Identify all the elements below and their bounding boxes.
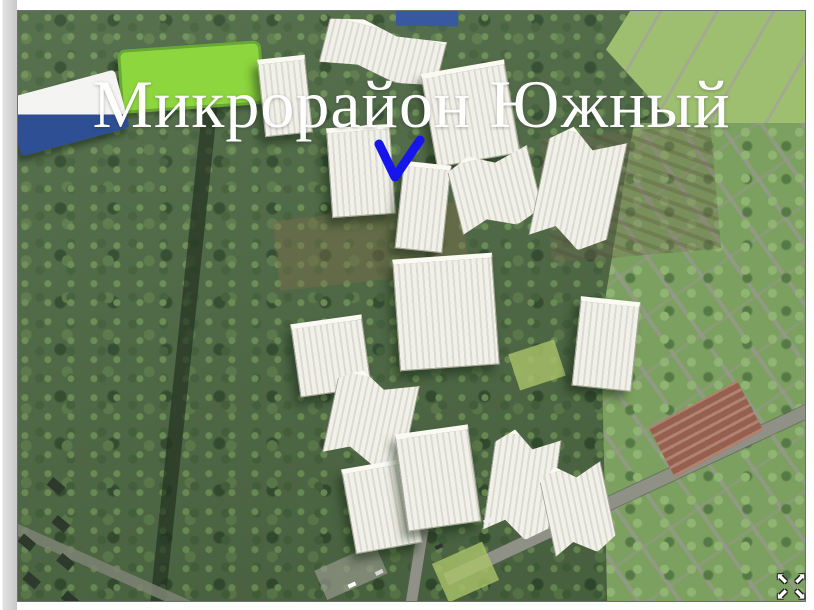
expand-sw-arrow-icon: ⬋: [773, 586, 791, 602]
expand-ne-arrow-icon: ⬈: [791, 570, 809, 586]
fullscreen-expand-button[interactable]: ⬉ ⬈ ⬋ ⬊: [773, 570, 809, 602]
village-road: [17, 519, 237, 602]
building-cluster: [395, 424, 482, 531]
blue-building-edge: [396, 10, 458, 27]
parking-lot: [314, 544, 387, 600]
checkmark-annotation: [370, 129, 430, 187]
left-margin-gutter: [0, 0, 17, 610]
expand-nw-arrow-icon: ⬉: [773, 570, 791, 586]
lawn-patch: [432, 542, 499, 602]
village-houses: [47, 477, 66, 495]
aerial-render: Микрорайон Южный: [17, 10, 806, 602]
building-cluster: [571, 296, 640, 392]
expand-se-arrow-icon: ⬊: [791, 586, 809, 602]
slide-canvas: Микрорайон Южный ⬉ ⬈ ⬋ ⬊: [0, 0, 814, 610]
tree-lined-alley: [148, 90, 219, 602]
building-cluster: [392, 253, 500, 372]
lawn-patch: [508, 340, 565, 391]
